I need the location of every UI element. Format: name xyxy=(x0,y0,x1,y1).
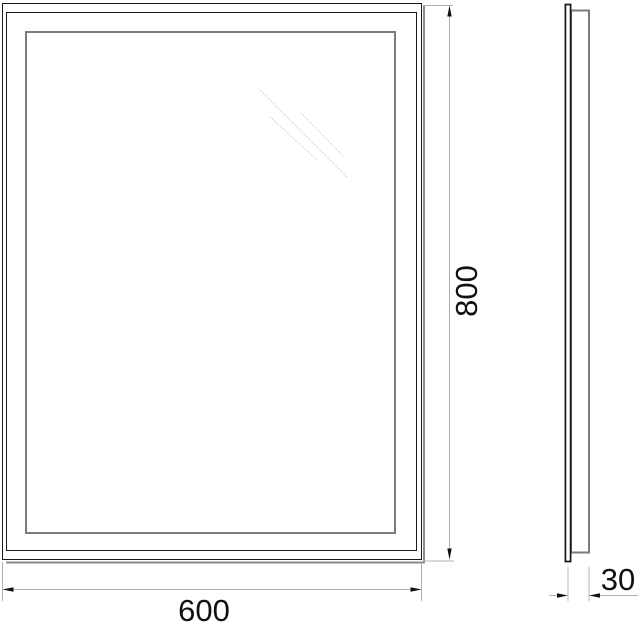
dimension-height: 800 xyxy=(423,6,484,562)
height-arrow-up xyxy=(447,6,451,17)
side-view-body xyxy=(571,11,589,553)
width-arrow-left xyxy=(3,587,14,591)
depth-arrow-left xyxy=(557,593,568,597)
front-view xyxy=(3,4,426,563)
height-arrow-down xyxy=(447,549,451,560)
mirror-frame-outer xyxy=(7,13,417,551)
depth-arrow-right xyxy=(589,593,600,597)
width-dimension-label: 600 xyxy=(178,593,230,624)
side-view xyxy=(565,5,589,562)
technical-drawing-canvas: 800 600 30 xyxy=(0,0,640,624)
dimension-width: 600 xyxy=(3,562,422,624)
width-arrow-right xyxy=(411,587,422,591)
dimension-depth: 30 xyxy=(549,562,638,601)
side-view-glass-edge xyxy=(565,5,570,562)
depth-dimension-label: 30 xyxy=(601,562,635,597)
height-dimension-label: 800 xyxy=(449,265,484,317)
